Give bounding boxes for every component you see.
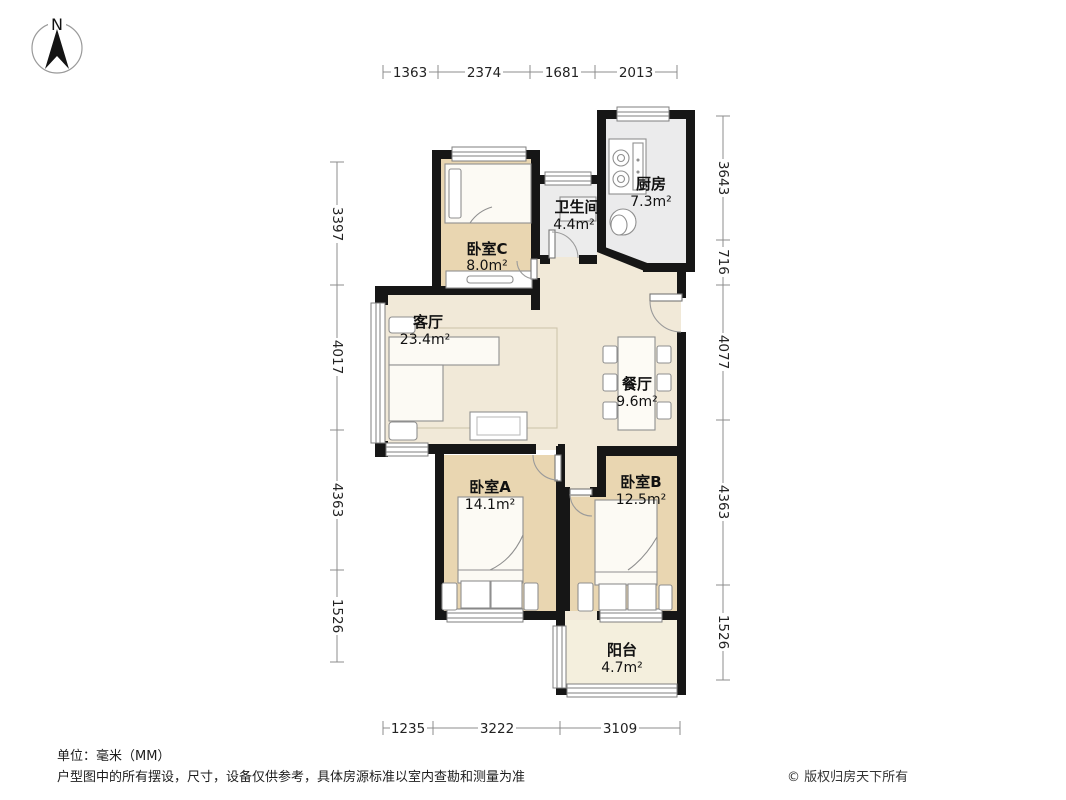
dim-right-4: 4363 — [715, 485, 731, 519]
furniture-coffee-table — [470, 412, 527, 440]
floorplan-page: N — [0, 0, 1066, 800]
north-compass: N — [32, 14, 82, 73]
room-area-bedroom-b: 12.5m² — [616, 492, 666, 508]
room-label-balcony: 阳台 — [607, 641, 637, 659]
dimension-top: 1363 2374 1681 2013 — [383, 64, 677, 81]
room-area-bathroom: 4.4m² — [553, 217, 595, 233]
wall-kitchen-right — [686, 110, 695, 272]
footer-disclaimer: 户型图中的所有摆设，尺寸，设备仅供参考，具体房源标准以室内查勘和测量为准 — [57, 766, 525, 785]
room-area-kitchen: 7.3m² — [630, 194, 672, 210]
room-label-bedroom-c: 卧室C — [466, 240, 507, 258]
window-bathroom — [545, 172, 591, 185]
room-label-bathroom: 卫生间 — [554, 198, 599, 216]
wall-bedroom-b-left-lower — [563, 497, 570, 611]
room-area-balcony: 4.7m² — [601, 660, 643, 676]
dim-right-3: 4077 — [715, 335, 731, 369]
room-area-bedroom-c: 8.0m² — [466, 258, 508, 274]
room-label-dining: 餐厅 — [622, 375, 652, 393]
wall-bedroom-c-left — [432, 150, 441, 295]
dim-left-1: 3397 — [329, 207, 345, 241]
wall-bathroom-bottom-right — [579, 255, 597, 264]
wall-post-vestibule — [563, 487, 570, 497]
balcony-access-floor — [565, 611, 597, 620]
dim-bottom-1: 1235 — [391, 721, 425, 737]
wall-kitchen-left — [597, 119, 606, 249]
wall-bedroom-c-right-upper — [531, 150, 540, 259]
footer-unit-note: 单位：毫米（MM） — [57, 745, 170, 764]
room-area-bedroom-a: 14.1m² — [465, 497, 515, 513]
room-label-bedroom-a: 卧室A — [469, 478, 511, 496]
wall-balcony-right — [677, 620, 686, 695]
north-arrow-icon — [45, 29, 69, 69]
window-bedroom-b — [600, 609, 662, 622]
dim-left-3: 4363 — [329, 483, 345, 517]
dim-right-5: 1526 — [715, 615, 731, 649]
dim-left-2: 4017 — [329, 340, 345, 374]
room-area-dining: 9.6m² — [616, 394, 658, 410]
dim-top-4: 2013 — [619, 65, 653, 81]
dim-right-2: 716 — [715, 249, 731, 275]
window-kitchen — [617, 107, 669, 121]
wall-kitchen-bottom — [643, 263, 686, 272]
room-label-kitchen: 厨房 — [636, 175, 666, 193]
dim-top-3: 1681 — [545, 65, 579, 81]
room-area-living: 23.4m² — [400, 332, 450, 348]
window-balcony-bottom — [567, 684, 677, 697]
wall-living-left-post-top — [375, 286, 388, 305]
furniture-bed-c — [445, 164, 531, 223]
room-label-bedroom-b: 卧室B — [620, 473, 661, 491]
wall-right-below-entry — [677, 332, 686, 620]
furniture-sink — [610, 209, 636, 235]
dimension-bottom: 1235 3222 3109 — [383, 720, 680, 737]
dim-top-1: 1363 — [393, 65, 427, 81]
dimension-right: 3643 716 4077 4363 1526 — [715, 116, 731, 680]
floorplan-drawing: N — [0, 0, 1066, 800]
window-balcony-left — [553, 626, 566, 688]
dim-bottom-2: 3222 — [480, 721, 514, 737]
dim-left-4: 1526 — [329, 599, 345, 633]
dim-bottom-3: 3109 — [603, 721, 637, 737]
window-living-bottom — [386, 443, 428, 456]
wall-bedroom-b-top — [597, 446, 686, 456]
dim-top-2: 2374 — [467, 65, 501, 81]
window-bedroom-a — [447, 609, 523, 622]
dim-right-1: 3643 — [715, 161, 731, 195]
room-label-living: 客厅 — [412, 313, 443, 331]
window-bedroom-c — [452, 147, 526, 161]
dimension-left: 3397 4017 4363 1526 — [329, 162, 345, 662]
window-living-left — [371, 303, 385, 443]
footer-copyright: © 版权归房天下所有 — [787, 766, 908, 785]
